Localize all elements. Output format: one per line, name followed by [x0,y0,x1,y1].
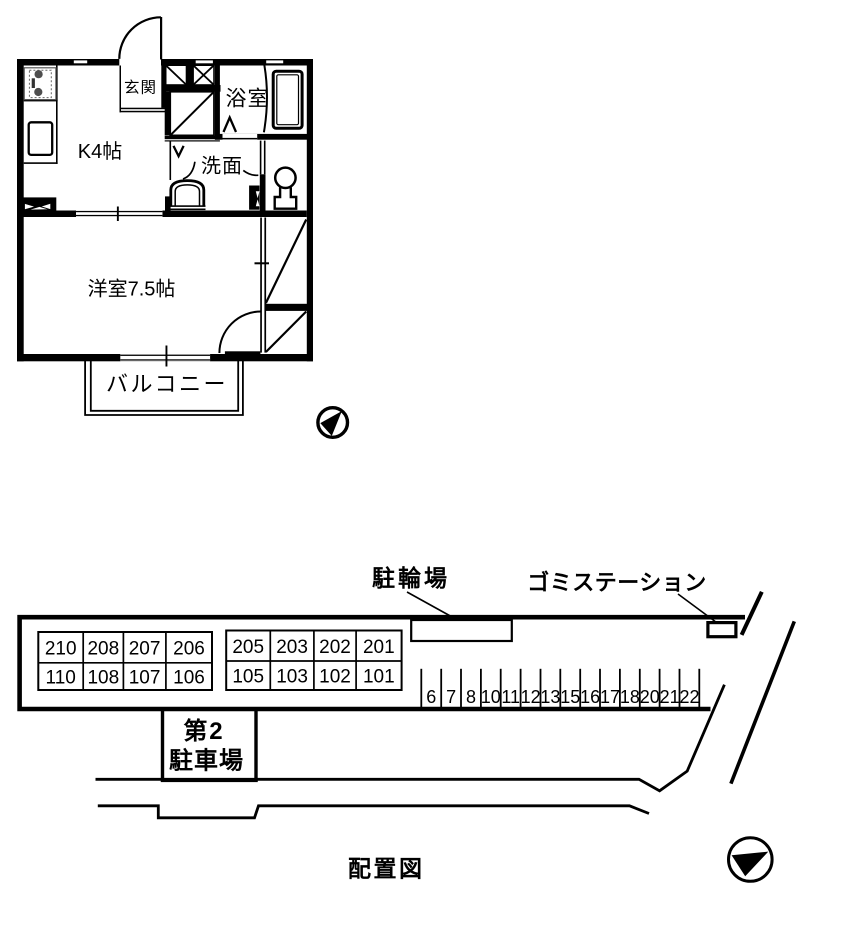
svg-text:208: 208 [87,639,119,660]
svg-text:駐輪場: 駐輪場 [372,565,450,591]
svg-text:207: 207 [129,639,161,660]
svg-text:205: 205 [232,637,264,658]
svg-text:106: 106 [173,668,205,689]
svg-text:103: 103 [276,667,308,688]
svg-text:18: 18 [620,687,640,707]
svg-text:玄関: 玄関 [124,79,157,97]
svg-text:13: 13 [540,687,560,707]
svg-text:20: 20 [640,687,660,707]
svg-text:101: 101 [363,667,395,688]
svg-text:202: 202 [319,637,351,658]
svg-text:16: 16 [580,687,600,707]
svg-text:11: 11 [501,687,520,707]
svg-text:12: 12 [521,687,541,707]
svg-text:6: 6 [426,687,436,707]
svg-text:8: 8 [466,687,476,707]
svg-text:15: 15 [560,687,580,707]
svg-text:ゴミステーション: ゴミステーション [527,570,707,595]
svg-text:17: 17 [600,687,620,707]
svg-text:201: 201 [363,637,395,658]
svg-text:洗面: 洗面 [201,155,243,178]
svg-text:107: 107 [129,668,161,689]
svg-text:203: 203 [276,637,308,658]
svg-text:7: 7 [446,687,456,707]
svg-text:バルコニー: バルコニー [106,372,228,397]
svg-text:21: 21 [660,687,680,707]
svg-text:206: 206 [173,639,205,660]
svg-text:105: 105 [232,667,264,688]
svg-text:10: 10 [481,687,501,707]
svg-text:22: 22 [679,687,699,707]
svg-text:110: 110 [46,668,76,689]
svg-text:第2: 第2 [183,717,224,745]
svg-text:102: 102 [319,667,351,688]
svg-text:配置図: 配置図 [348,856,425,882]
svg-text:K4帖: K4帖 [78,140,122,163]
svg-text:駐車場: 駐車場 [169,747,244,775]
svg-text:108: 108 [87,668,119,689]
svg-text:洋室7.5帖: 洋室7.5帖 [88,278,176,301]
svg-text:210: 210 [45,639,77,660]
svg-text:浴室: 浴室 [226,88,270,111]
